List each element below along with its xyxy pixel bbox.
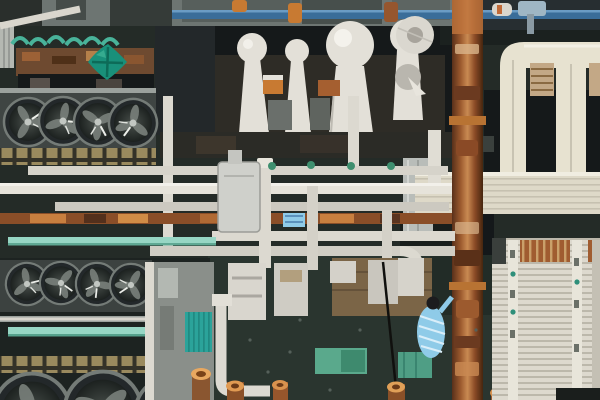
pipe-flange (449, 282, 486, 290)
junction-box (218, 150, 260, 232)
equipment-box (228, 263, 266, 320)
vent-dome-large (326, 21, 374, 69)
rusty-pipe-stub (191, 368, 211, 400)
rust-slat-strip (520, 240, 570, 262)
vertical-pipe (307, 186, 318, 270)
mid-left-platform (145, 262, 214, 400)
rust-collar (318, 80, 340, 96)
rust-riser-pipe (449, 0, 486, 400)
vent-dome (237, 33, 267, 63)
corrugated-structure (492, 238, 600, 400)
vertical-pipe (259, 158, 271, 268)
rooftop-photo: top-down view of an industrial plant roo… (0, 0, 600, 400)
seam-rail (508, 240, 518, 400)
teal-corrugated-panel (185, 312, 212, 352)
equipment-box (330, 261, 356, 283)
equipment-box (398, 258, 424, 296)
rooftop-photo-canvas: top-down view of an industrial plant roo… (0, 0, 600, 400)
vertical-pipe (428, 130, 441, 188)
louver-strip (0, 356, 166, 373)
vertical-pipe (348, 96, 359, 170)
pipe-flange (449, 116, 486, 125)
vertical-pipe (145, 262, 154, 400)
vent-dome (285, 39, 309, 63)
louver-box (589, 63, 600, 96)
rust-collar (263, 78, 283, 94)
louver-strip (0, 148, 156, 165)
cooling-tower-row-1 (0, 87, 164, 165)
worker-head (427, 297, 440, 310)
louver-box (530, 63, 554, 96)
